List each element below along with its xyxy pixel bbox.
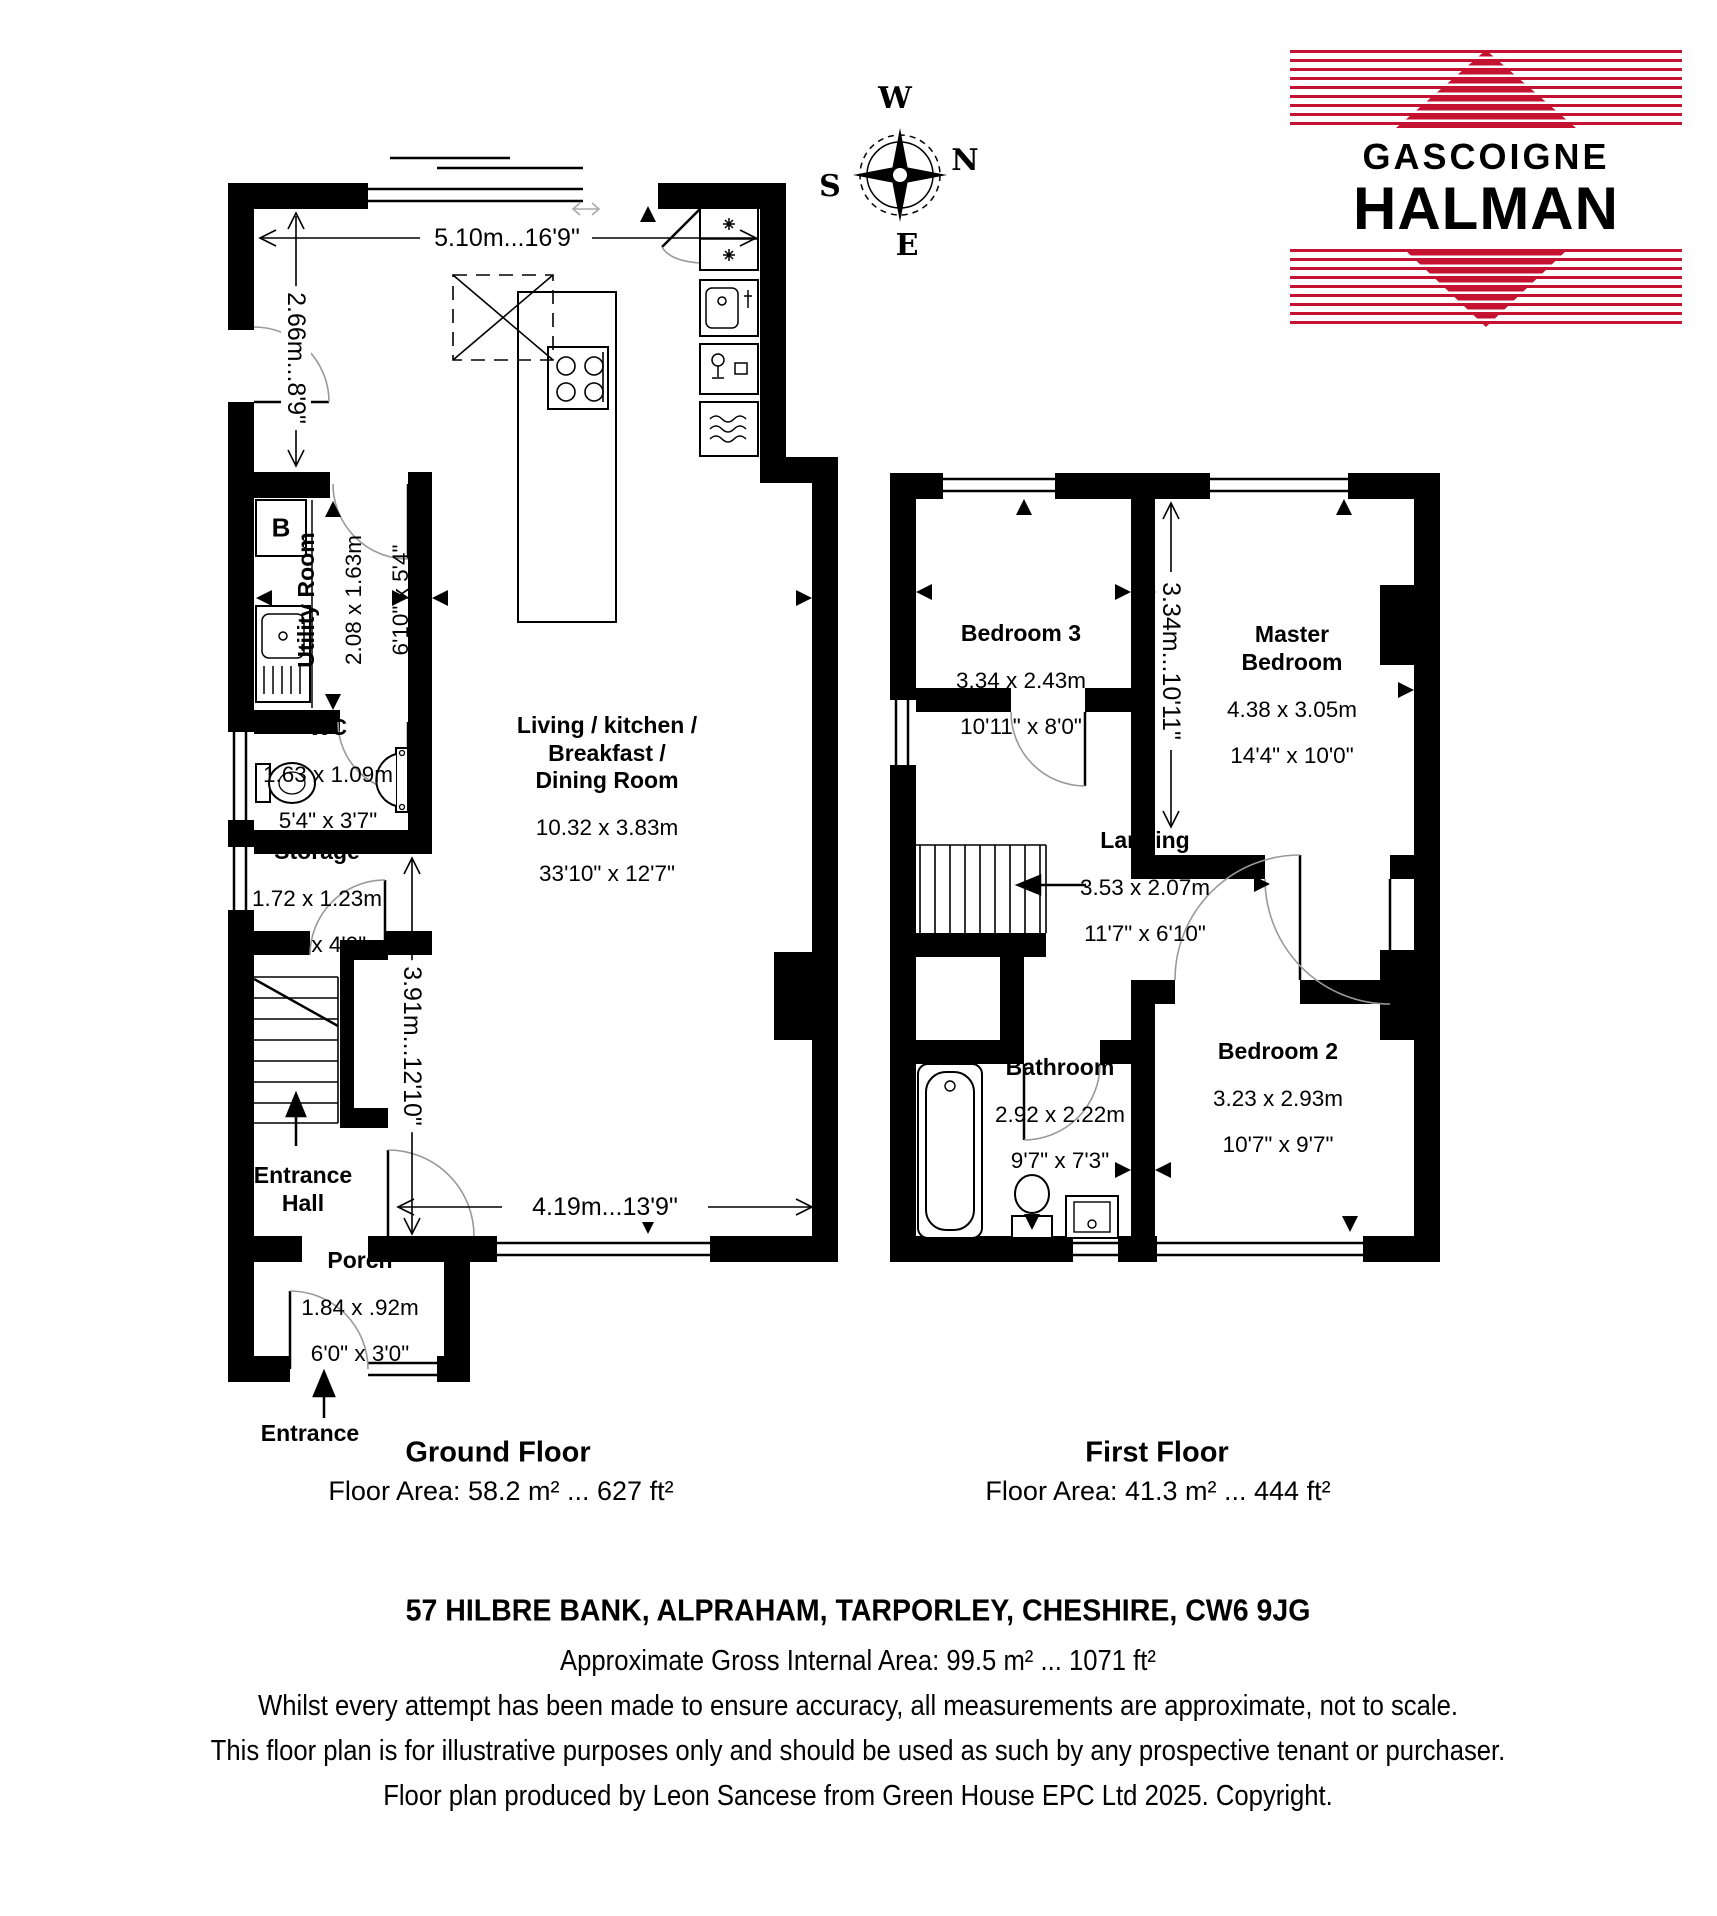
room-metric-master-bedroom: 4.38 x 3.05m xyxy=(1227,696,1357,723)
room-label-utility: Utility Room 2.08 x 1.63m 6'10" x 5'4" xyxy=(273,532,435,667)
room-name-master-bedroom: Master Bedroom xyxy=(1227,621,1357,676)
room-imperial-bedroom2: 10'7" x 9'7" xyxy=(1213,1131,1343,1158)
producer-credit: Floor plan produced by Leon Sancese from… xyxy=(383,1779,1333,1813)
room-metric-porch: 1.84 x .92m xyxy=(301,1294,419,1321)
room-name-bathroom: Bathroom xyxy=(995,1054,1125,1082)
compass-icon xyxy=(853,128,947,222)
room-metric-wc: 1.63 x 1.09m xyxy=(263,761,393,788)
compass-west-label: W xyxy=(878,81,912,117)
room-name-utility: Utility Room xyxy=(292,532,321,667)
entrance-label: Entrance xyxy=(261,1420,359,1448)
room-name-bedroom3: Bedroom 3 xyxy=(956,620,1086,648)
logo-bottom-stripes xyxy=(1290,249,1682,327)
room-metric-bedroom2: 3.23 x 2.93m xyxy=(1213,1085,1343,1112)
room-name-bedroom2: Bedroom 2 xyxy=(1213,1038,1343,1066)
logo-top-stripes xyxy=(1290,50,1682,128)
ground-floor-title: Ground Floor xyxy=(405,1436,590,1471)
room-metric-storage: 1.72 x 1.23m xyxy=(252,885,382,912)
compass-east-label: E xyxy=(896,228,919,264)
room-imperial-living: 33'10" x 12'7" xyxy=(517,861,697,888)
dim-hall-height: 3.91m...12'10" xyxy=(397,960,427,1132)
logo-pyramid-up-icon xyxy=(1396,50,1576,128)
compass-south-label: S xyxy=(819,169,841,205)
room-imperial-bathroom: 9'7" x 7'3" xyxy=(995,1147,1125,1174)
room-metric-landing: 3.53 x 2.07m xyxy=(1080,874,1210,901)
dim-living-width: 4.19m...13'9" xyxy=(526,1192,684,1222)
boiler-label: B xyxy=(272,512,291,543)
room-metric-utility: 2.08 x 1.63m xyxy=(340,532,368,667)
floorplan-page: W N S E GASCOIGNE HALMAN Living / kitche… xyxy=(0,0,1717,1916)
room-imperial-bedroom3: 10'11" x 8'0" xyxy=(956,713,1086,740)
compass-north-label: N xyxy=(951,143,978,179)
gross-internal-area: Approximate Gross Internal Area: 99.5 m²… xyxy=(560,1644,1156,1678)
room-label-bathroom: Bathroom 2.92 x 2.22m 9'7" x 7'3" xyxy=(995,1035,1125,1193)
disclaimer-line1: Whilst every attempt has been made to en… xyxy=(258,1689,1458,1723)
room-metric-living: 10.32 x 3.83m xyxy=(517,814,697,841)
ground-floor-area: Floor Area: 58.2 m² ... 627 ft² xyxy=(328,1475,673,1507)
first-floor-title: First Floor xyxy=(1085,1436,1228,1471)
room-name-wc: WC xyxy=(263,714,393,742)
room-label-storage: Storage 1.72 x 1.23m 5'8" x 4'0" xyxy=(252,819,382,977)
room-name-landing: Landing xyxy=(1080,827,1210,855)
room-name-entrance-hall: Entrance Hall xyxy=(254,1162,352,1217)
room-label-bedroom2: Bedroom 2 3.23 x 2.93m 10'7" x 9'7" xyxy=(1213,1019,1343,1177)
room-imperial-storage: 5'8" x 4'0" xyxy=(252,931,382,958)
room-name-porch: Porch xyxy=(301,1247,419,1275)
disclaimer-line2: This floor plan is for illustrative purp… xyxy=(211,1734,1506,1768)
room-label-entrance-hall: Entrance Hall xyxy=(254,1143,352,1237)
room-imperial-porch: 6'0" x 3'0" xyxy=(301,1340,419,1367)
agency-logo: GASCOIGNE HALMAN xyxy=(1290,50,1682,318)
dim-kitchen-depth: 2.66m...8'9" xyxy=(281,286,311,430)
first-floor-area: Floor Area: 41.3 m² ... 444 ft² xyxy=(985,1475,1330,1507)
room-metric-bathroom: 2.92 x 2.22m xyxy=(995,1101,1125,1128)
room-imperial-landing: 11'7" x 6'10" xyxy=(1080,920,1210,947)
room-label-landing: Landing 3.53 x 2.07m 11'7" x 6'10" xyxy=(1080,808,1210,966)
room-name-living: Living / kitchen / Breakfast / Dining Ro… xyxy=(517,712,697,795)
property-address: 57 HILBRE BANK, ALPRAHAM, TARPORLEY, CHE… xyxy=(406,1591,1311,1628)
room-name-storage: Storage xyxy=(252,838,382,866)
logo-word-halman: HALMAN xyxy=(1290,174,1682,243)
room-label-bedroom3: Bedroom 3 3.34 x 2.43m 10'11" x 8'0" xyxy=(956,601,1086,759)
dim-top-width: 5.10m...16'9" xyxy=(428,223,586,253)
room-imperial-master-bedroom: 14'4" x 10'0" xyxy=(1227,742,1357,769)
logo-word-gascoigne: GASCOIGNE xyxy=(1290,136,1682,178)
room-label-master-bedroom: Master Bedroom 4.38 x 3.05m 14'4" x 10'0… xyxy=(1227,602,1357,788)
room-imperial-utility: 6'10" x 5'4" xyxy=(388,532,416,667)
logo-pyramid-down-icon xyxy=(1404,249,1568,327)
room-metric-bedroom3: 3.34 x 2.43m xyxy=(956,667,1086,694)
dim-bedrooms-depth: 3.34m...10'11" xyxy=(1156,576,1186,746)
room-label-living: Living / kitchen / Breakfast / Dining Ro… xyxy=(517,693,697,907)
room-label-porch: Porch 1.84 x .92m 6'0" x 3'0" xyxy=(301,1228,419,1386)
